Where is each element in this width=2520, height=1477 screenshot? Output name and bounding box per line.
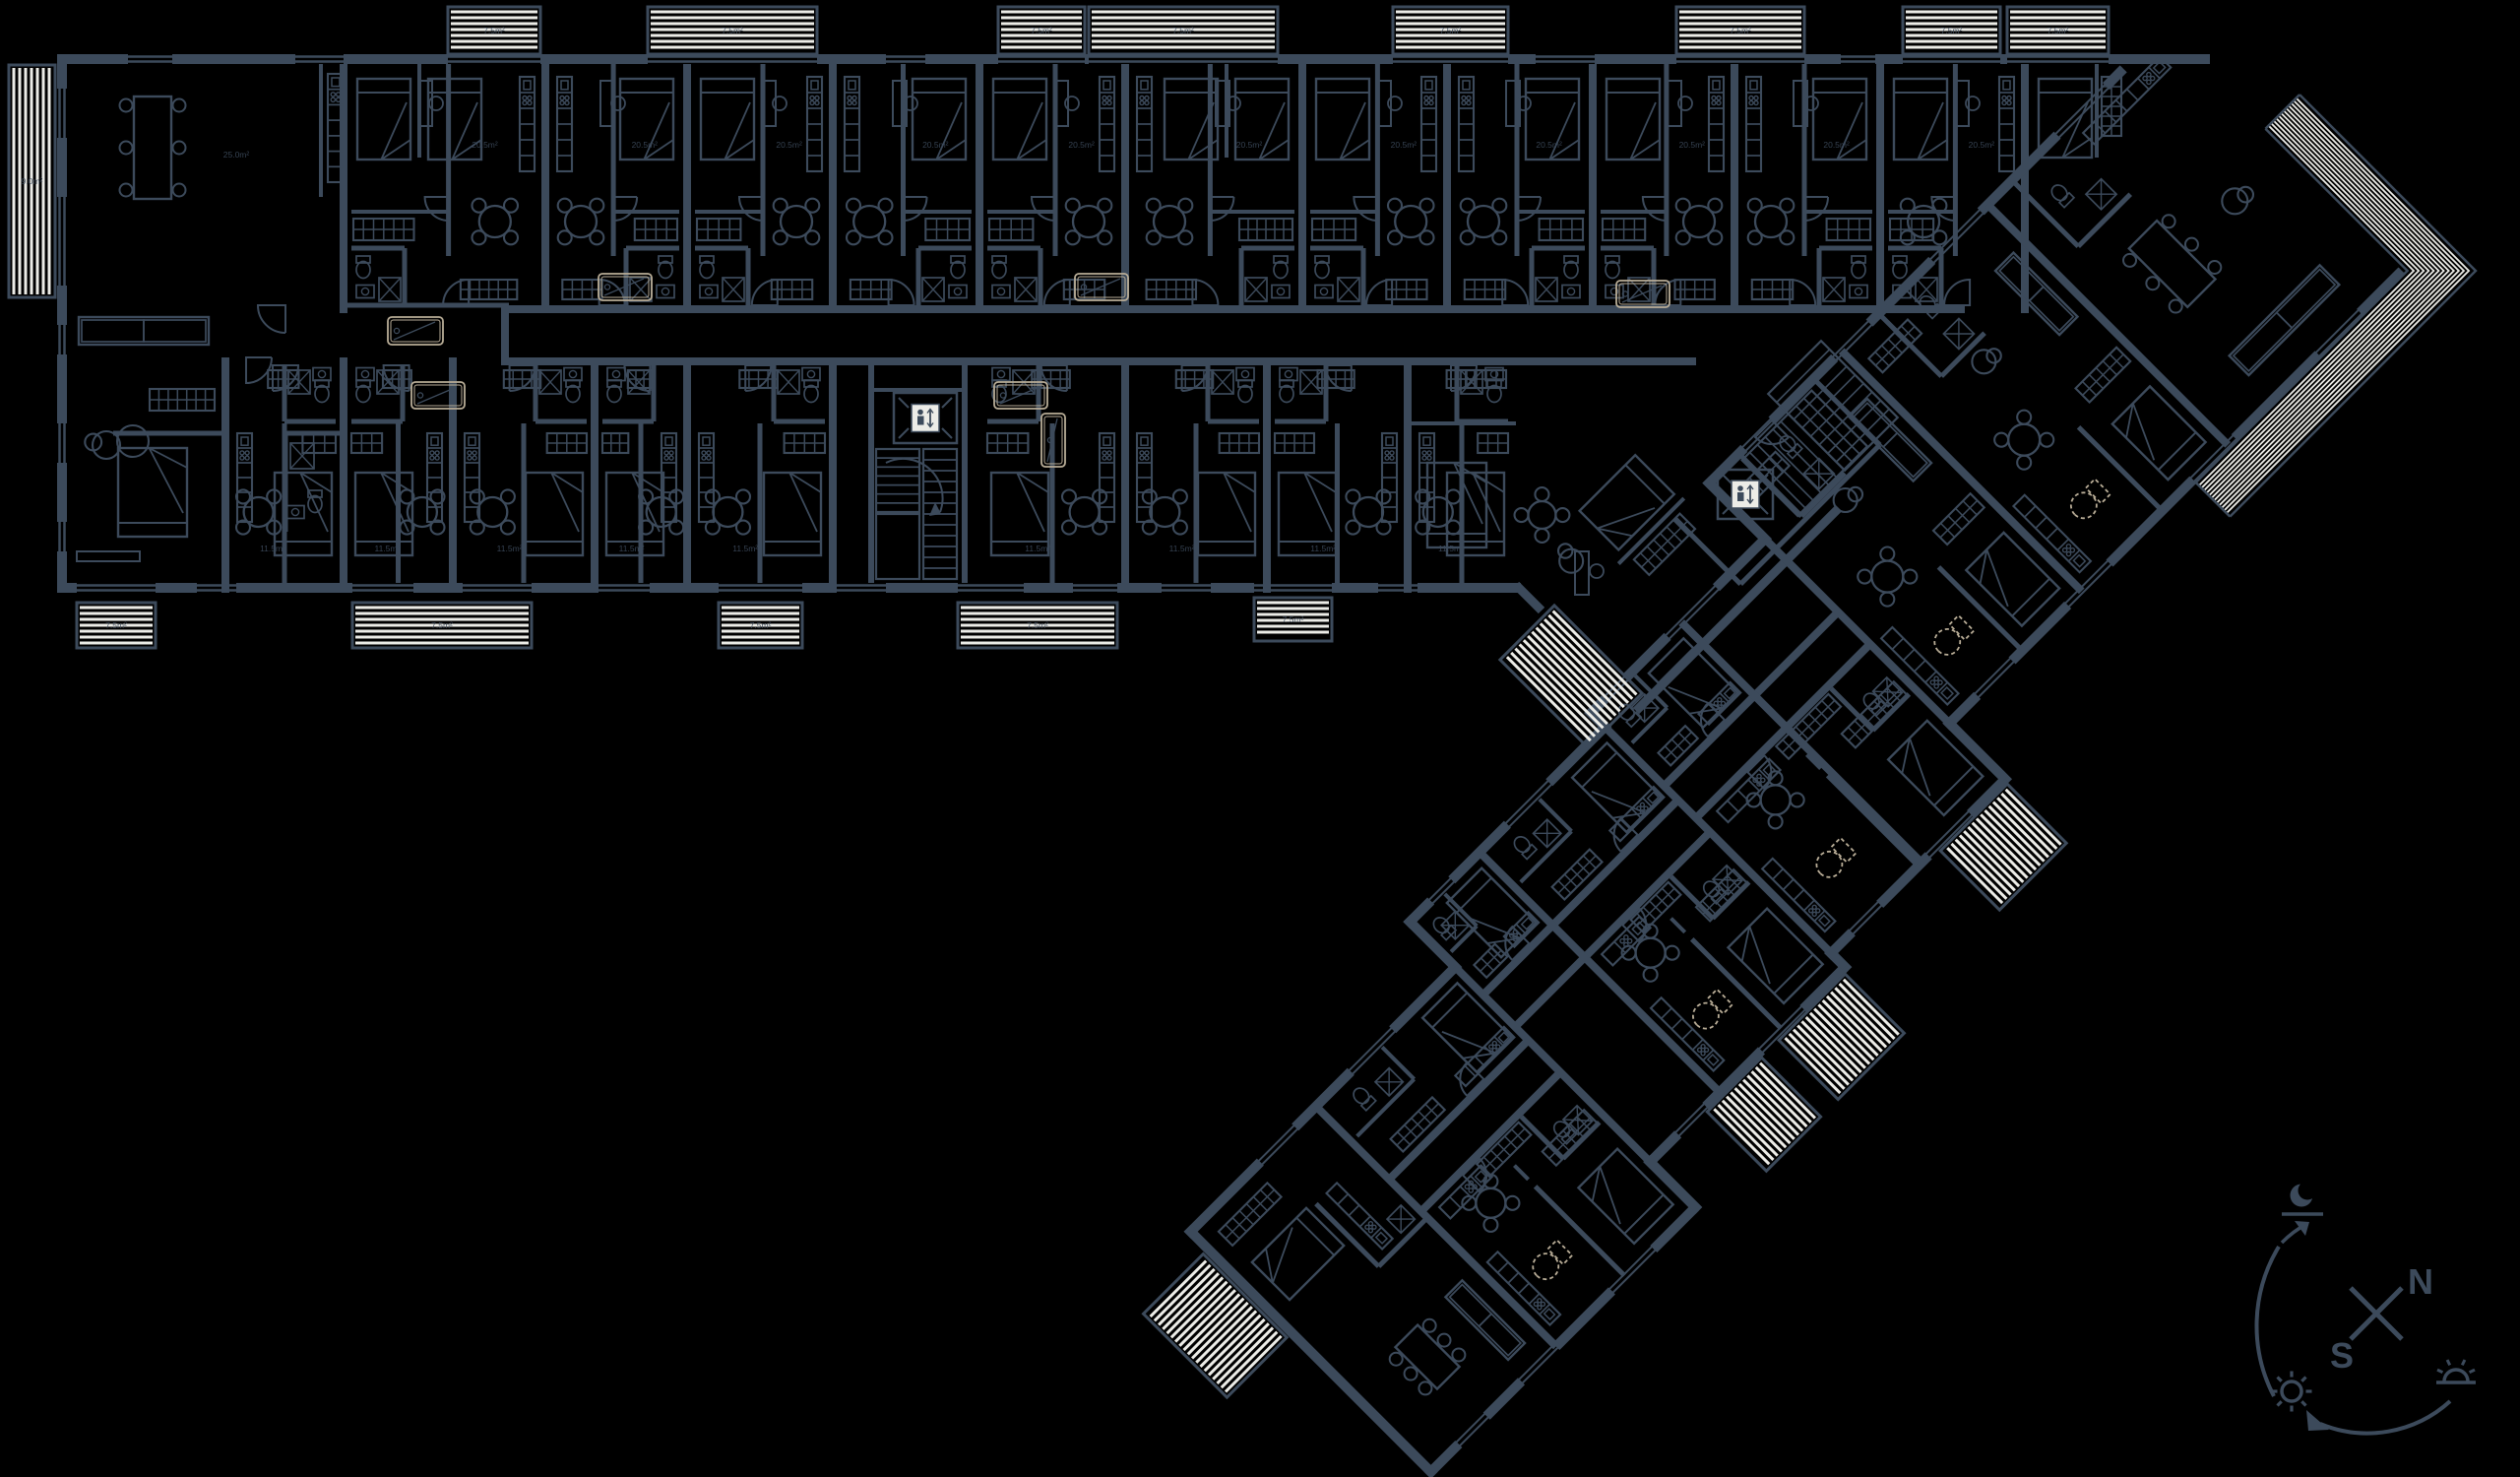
svg-text:7.5m²: 7.5m² <box>431 620 453 630</box>
svg-text:11.5m²: 11.5m² <box>732 544 758 553</box>
svg-text:9.0m²: 9.0m² <box>22 176 43 186</box>
svg-text:20.5m²: 20.5m² <box>922 140 949 150</box>
svg-text:7.5m²: 7.5m² <box>483 26 505 35</box>
svg-text:7.5m²: 7.5m² <box>750 620 772 630</box>
svg-text:11.5m²: 11.5m² <box>619 544 645 553</box>
svg-text:20.5m²: 20.5m² <box>776 140 802 150</box>
svg-text:7.5m²: 7.5m² <box>1283 614 1304 624</box>
svg-text:7.5m²: 7.5m² <box>105 620 127 630</box>
svg-text:11.5m²: 11.5m² <box>1310 544 1336 553</box>
svg-text:N: N <box>2408 1261 2433 1302</box>
svg-text:7.5m²: 7.5m² <box>1941 26 1963 35</box>
svg-text:20.5m²: 20.5m² <box>1679 140 1706 150</box>
svg-text:7.5m²: 7.5m² <box>1031 26 1052 35</box>
svg-text:7.5m²: 7.5m² <box>1730 26 1751 35</box>
svg-text:20.5m²: 20.5m² <box>1236 140 1263 150</box>
svg-text:11.5m²: 11.5m² <box>497 544 523 553</box>
svg-text:11.5m²: 11.5m² <box>260 544 285 553</box>
svg-text:7.5m²: 7.5m² <box>1027 620 1048 630</box>
svg-text:7.5m²: 7.5m² <box>1440 26 1462 35</box>
svg-text:11.5m²: 11.5m² <box>374 544 400 553</box>
svg-text:11.5m²: 11.5m² <box>1169 544 1195 553</box>
svg-text:20.5m²: 20.5m² <box>1969 140 1995 150</box>
svg-text:7.5m²: 7.5m² <box>1172 26 1194 35</box>
svg-text:20.5m²: 20.5m² <box>632 140 659 150</box>
svg-text:20.5m²: 20.5m² <box>1536 140 1562 150</box>
svg-text:25.0m²: 25.0m² <box>223 150 250 160</box>
svg-text:20.5m²: 20.5m² <box>1823 140 1850 150</box>
svg-text:S: S <box>2330 1335 2354 1376</box>
svg-text:20.5m²: 20.5m² <box>472 140 498 150</box>
svg-text:20.5m²: 20.5m² <box>1391 140 1417 150</box>
svg-text:20.5m²: 20.5m² <box>1068 140 1095 150</box>
svg-text:11.5m²: 11.5m² <box>1025 544 1050 553</box>
svg-text:7.5m²: 7.5m² <box>2047 26 2069 35</box>
svg-text:7.5m²: 7.5m² <box>722 26 743 35</box>
